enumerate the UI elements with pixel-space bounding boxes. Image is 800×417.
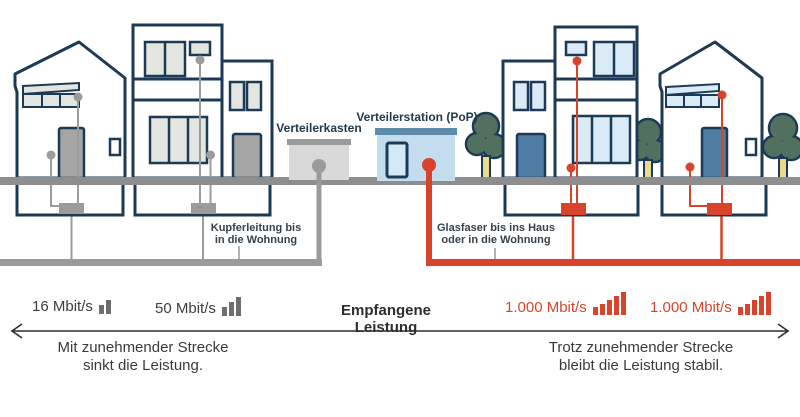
house-2-small-window [190,42,210,55]
copper-caption-line1: Mit zunehmender Strecke [43,339,243,357]
fiber-cable-label-line1: Glasfaser bis ins Haus [426,222,566,234]
fiber-caption-line2: bleibt die Leistung stabil. [541,357,741,375]
copper-outlet-dot [196,56,205,65]
house-4-window-band [666,95,719,107]
copper-caption: Mit zunehmender Strecke sinkt die Leistu… [43,339,243,375]
house-2-annex-window [230,82,244,110]
copper-cable-label-line1: Kupferleitung bis [186,222,326,234]
speed-item-1000-a: 1.000 Mbit/s [505,292,626,318]
signal-bar [621,292,626,315]
signal-bar [614,296,619,315]
signal-bar [222,307,227,316]
signal-bar [738,307,743,315]
house-2-big-window [150,117,207,163]
fiber-main-run [426,259,800,266]
signal-bar [229,302,234,316]
copper-junction-box [59,203,84,214]
signal-bar [752,300,757,315]
speed-item-1000-b: 1.000 Mbit/s [650,292,771,318]
house-4-fiber [660,42,766,215]
house-4-small-window [746,139,756,155]
copper-outlet-dot [47,151,56,160]
fiber-cable-label: Glasfaser bis ins Haus oder in die Wohnu… [426,222,566,246]
signal-bar [106,300,111,314]
house-1-window-band [23,94,79,107]
fiber-caption: Trotz zunehmender Strecke bleibt die Lei… [541,339,741,375]
fiber-outlet-dot [718,91,727,100]
house-1-copper [15,42,125,215]
signal-bar [99,305,104,314]
house-1-small-window [110,139,120,155]
copper-feed-line [317,166,322,262]
speed-1000-label: 1.000 Mbit/s [650,298,732,318]
copper-main-run [0,259,322,266]
copper-outlet-dot [206,151,215,160]
speed-50-label: 50 Mbit/s [155,299,216,319]
fiber-outlet-dot [567,164,576,173]
tree-trunk [482,156,490,178]
house-1-door [59,128,84,178]
house-2-annex-window [247,82,261,110]
pop-station-door [387,143,407,177]
signal-bar [600,304,605,315]
fiber-outlet-dot [686,163,695,172]
house-3-small-window [566,42,586,55]
fiber-junction-box [561,203,586,215]
speed-1000-label: 1.000 Mbit/s [505,298,587,318]
house-2-copper [133,25,272,215]
signal-bar [593,307,598,315]
received-power-label: Empfangene Leistung [308,302,464,336]
copper-cable-label-line2: in die Wohnung [186,234,326,246]
signal-bar [759,296,764,315]
signal-bar [236,297,241,316]
distribution-box-roof [287,139,351,145]
house-3-annex-window [514,82,528,110]
copper-feed-dot [312,159,326,173]
signal-bar [745,304,750,315]
copper-caption-line2: sinkt die Leistung. [43,357,243,375]
speed-16-label: 16 Mbit/s [32,297,93,317]
signal-bars-icon [99,300,111,314]
house-3-door [517,134,545,178]
signal-bar [766,292,771,315]
infographic-copper-vs-fiber: Verteilerkasten Verteilerstation (PoP) K… [0,0,800,417]
fiber-caption-line1: Trotz zunehmender Strecke [541,339,741,357]
house-4-door [702,128,727,178]
fiber-outlet-dot [573,57,582,66]
tree-trunk [644,160,652,178]
copper-junction-box [191,203,216,214]
tree-trunk [779,158,787,178]
house-3-big-window [573,116,630,163]
speed-item-50: 50 Mbit/s [155,297,241,319]
signal-bar [607,300,612,315]
signal-bars-icon [222,297,241,316]
tree-icon [763,114,800,178]
copper-cable-label: Kupferleitung bis in die Wohnung [186,222,326,246]
house-2-door [233,134,261,178]
fiber-junction-box [707,203,732,215]
fiber-feed-dot [422,158,436,172]
house-3-fiber [503,27,638,215]
pop-station-label: Verteilerstation (PoP) [337,110,497,124]
fiber-cable-label-line2: oder in die Wohnung [426,234,566,246]
house-3-annex-window [531,82,545,110]
copper-outlet-dot [74,93,83,102]
fiber-feed-line [426,165,432,262]
signal-bars-icon [738,292,771,315]
speed-item-16: 16 Mbit/s [32,297,111,317]
signal-bars-icon [593,292,626,315]
